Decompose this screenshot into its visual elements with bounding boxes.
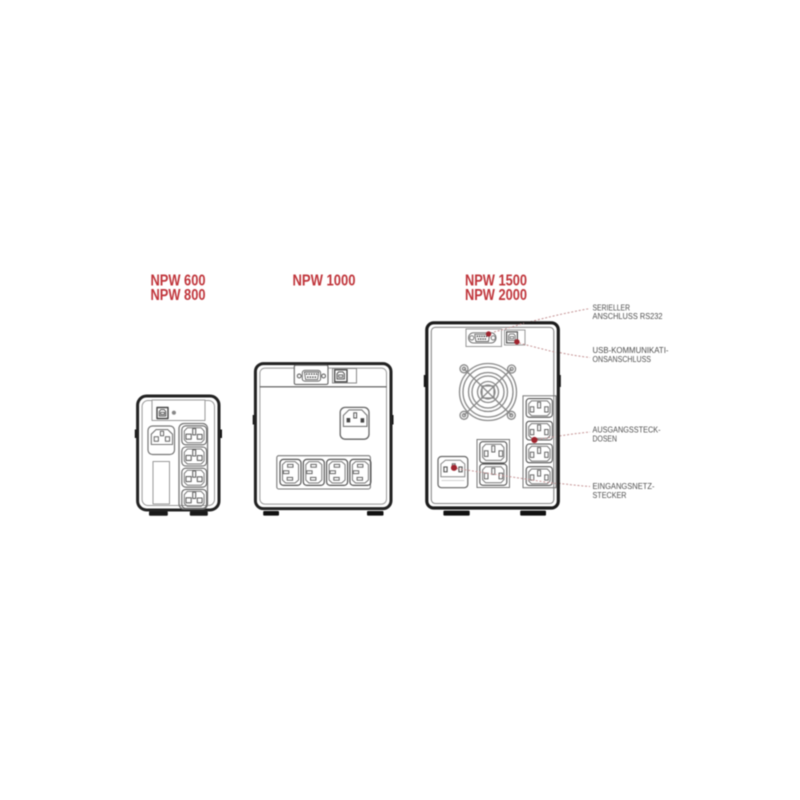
svg-text:USB-KOMMUNIKATI-: USB-KOMMUNIKATI-	[593, 346, 669, 355]
svg-text:NPW 800: NPW 800	[151, 287, 206, 304]
svg-text:NPW 2000: NPW 2000	[465, 287, 527, 304]
svg-text:ONSANSCHLUSS: ONSANSCHLUSS	[593, 355, 652, 364]
svg-text:EINGANGSNETZ-: EINGANGSNETZ-	[593, 482, 655, 491]
svg-text:DOSEN: DOSEN	[593, 434, 618, 443]
svg-text:ANSCHLUSS RS232: ANSCHLUSS RS232	[593, 312, 664, 321]
svg-text:NPW 1000: NPW 1000	[293, 273, 356, 290]
svg-text:STECKER: STECKER	[593, 491, 627, 500]
svg-text:AUSGANGSSTECK-: AUSGANGSSTECK-	[593, 425, 661, 434]
